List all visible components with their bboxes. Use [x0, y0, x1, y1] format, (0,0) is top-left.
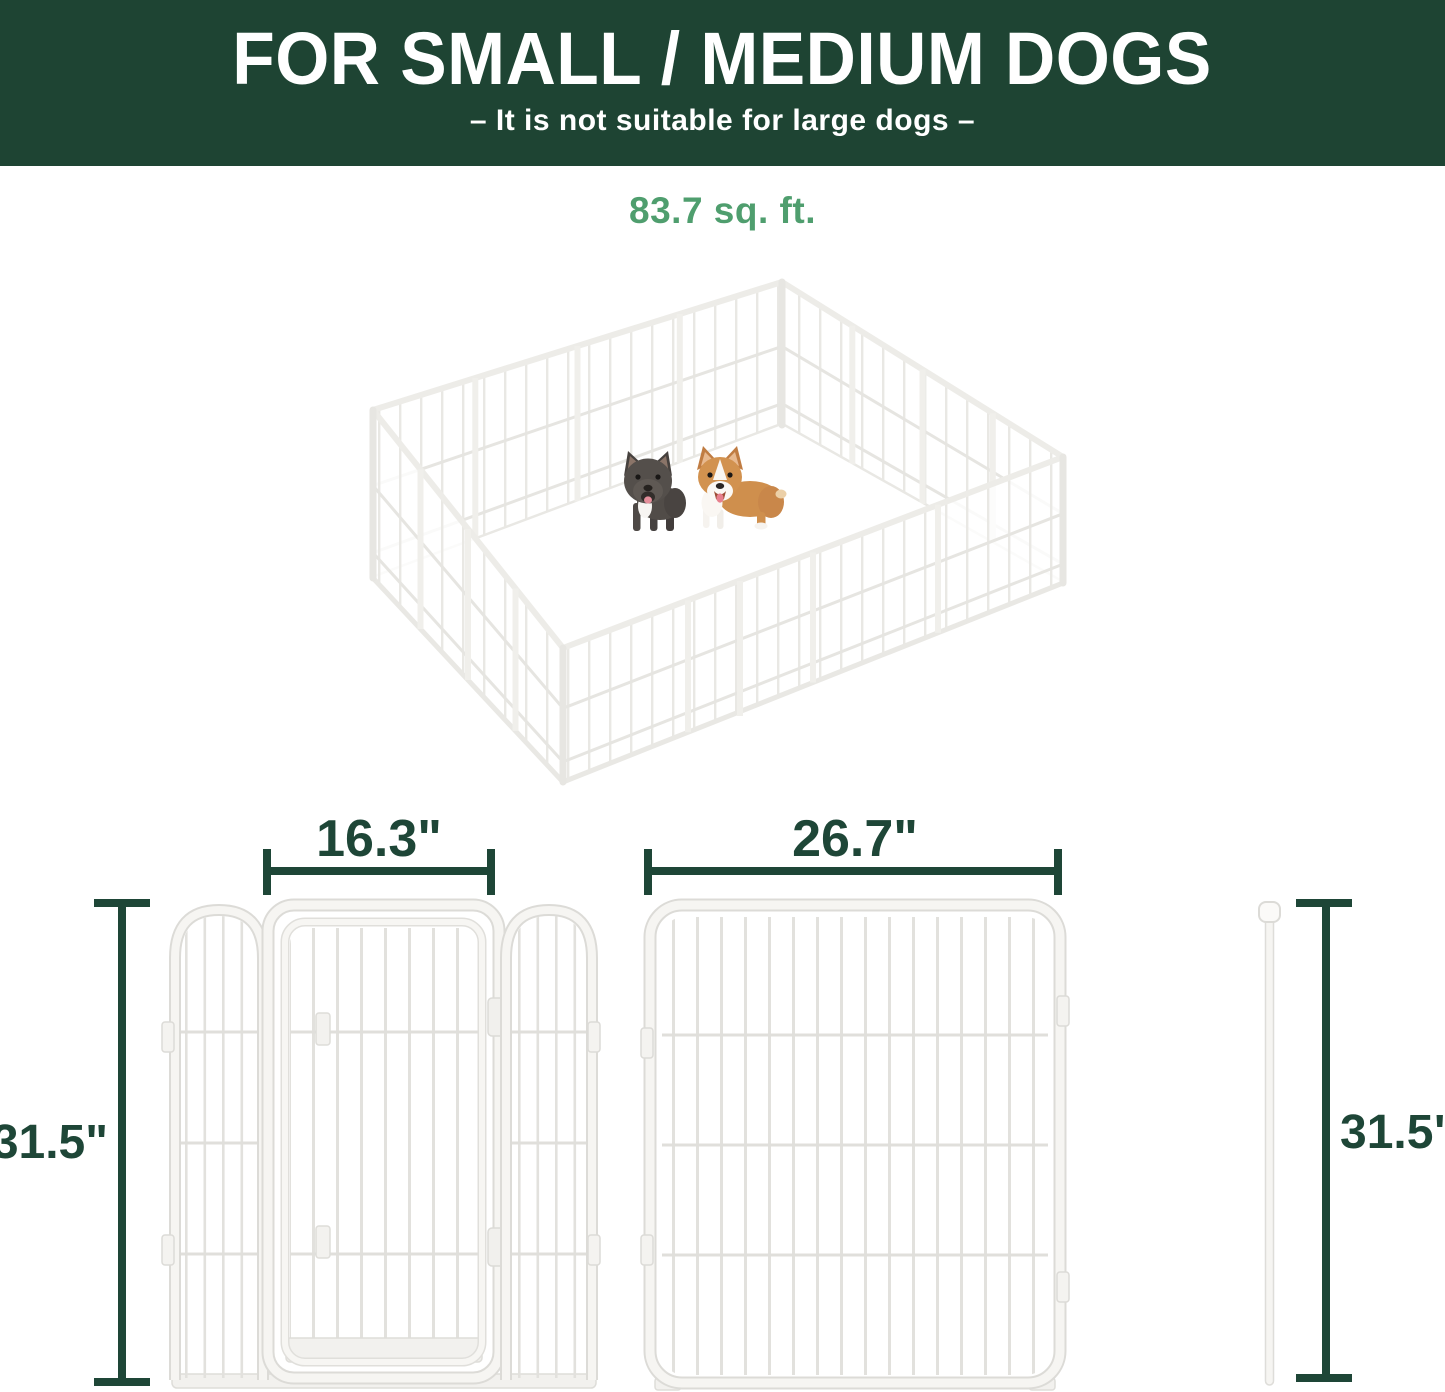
panel-diagram-door-set: [162, 905, 600, 1388]
connector-tab: [1057, 996, 1069, 1026]
dimension-door-width: 16.3": [263, 810, 495, 895]
playpen-illustration: [373, 282, 1063, 782]
panel-diagram-large: [641, 905, 1069, 1390]
door-panel: [268, 905, 505, 1378]
dimension-label-panel-height: 31.5": [0, 1116, 108, 1169]
connector-tab: [641, 1235, 653, 1265]
dimension-label-rod-height: 31.5": [1340, 1106, 1445, 1159]
connector-tab: [162, 1022, 174, 1052]
door-hinge: [316, 1013, 330, 1045]
connector-tab: [641, 1028, 653, 1058]
connector-tab: [1057, 1272, 1069, 1302]
small-side-panel-left: [162, 910, 263, 1380]
dimension-panel-height: 31.5": [0, 899, 150, 1386]
connector-tab: [162, 1235, 174, 1265]
dimension-large-panel-width: 26.7": [644, 810, 1062, 895]
dimension-label-door-width: 16.3": [316, 810, 442, 868]
connector-tab: [588, 1022, 600, 1052]
playpen-scene: 16.3" 26.7" 31.5" 31.5": [0, 0, 1445, 1392]
dimension-label-large-panel-width: 26.7": [792, 810, 918, 868]
door-hinge: [316, 1226, 330, 1258]
connector-rod: [1259, 902, 1280, 1385]
connector-tab: [588, 1235, 600, 1265]
product-infographic: FOR SMALL / MEDIUM DOGS – It is not suit…: [0, 0, 1445, 1392]
small-side-panel-right: [506, 910, 600, 1380]
dimension-rod-height: 31.5": [1296, 899, 1445, 1382]
